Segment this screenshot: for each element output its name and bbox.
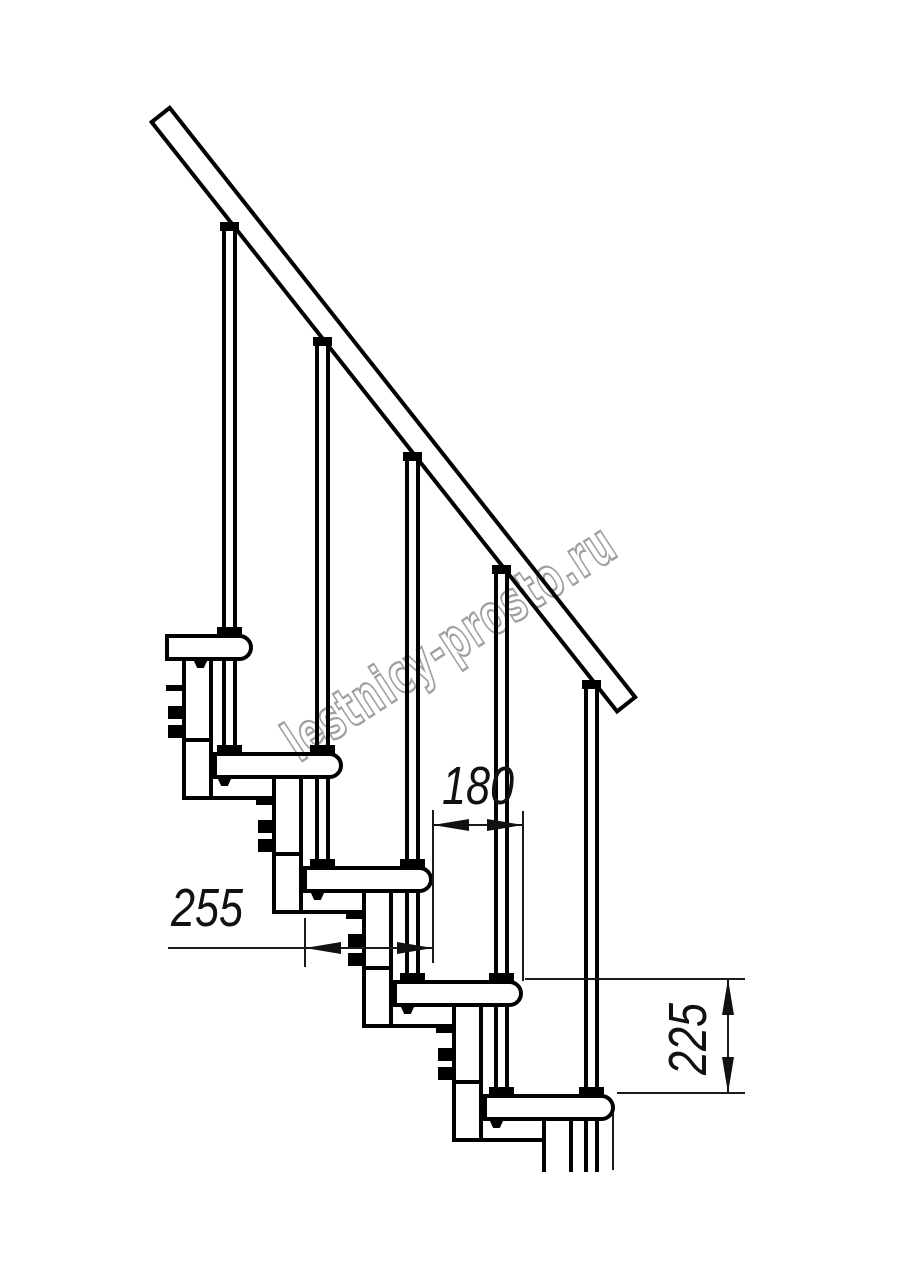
dimension-label-225: 225 [661, 1003, 715, 1075]
tube-joint-line [452, 1080, 483, 1084]
support-tube [362, 890, 393, 1028]
clamp-bolt [258, 820, 273, 833]
tread [483, 1094, 615, 1121]
tread [165, 634, 253, 661]
tube-joint-line [362, 966, 393, 970]
clamp-bar [436, 1027, 454, 1033]
baluster [315, 345, 330, 752]
baluster-lower-segment [405, 890, 420, 980]
arrow-180-right [487, 819, 523, 831]
technical-drawing-canvas: lestnicy-prosto.ru 180 255 225 [0, 0, 914, 1280]
clamp-bolt [168, 725, 183, 738]
support-tube [272, 776, 303, 914]
ext-line-180-right [522, 811, 524, 981]
arrow-225-down [722, 1057, 734, 1093]
support-tube [542, 1118, 573, 1172]
clamp-bar [166, 685, 184, 691]
ext-line-225-top [525, 978, 745, 980]
clamp-bolt [348, 953, 363, 966]
tread [303, 866, 433, 893]
module-base-plate [452, 1138, 546, 1142]
ext-line-180-left [432, 810, 434, 963]
baluster-bottom-flange [310, 745, 335, 754]
edge-line-bottom [612, 1113, 614, 1170]
arrow-255-left [305, 942, 341, 954]
baluster-bottom-flange [489, 973, 514, 982]
baluster [405, 460, 420, 866]
clamp-bolt [348, 934, 363, 947]
baluster-lower-segment [584, 1118, 599, 1172]
baluster-bottom-flange [217, 627, 242, 636]
dimension-label-180: 180 [442, 759, 514, 813]
support-tube [182, 658, 213, 800]
clamp-bolt [258, 839, 273, 852]
baluster-bottom-flange [579, 1087, 604, 1096]
arrow-180-left [433, 819, 469, 831]
clamp-bar [346, 913, 364, 919]
support-tube [452, 1004, 483, 1142]
baluster-lower-segment [222, 658, 237, 752]
tube-joint-line [182, 738, 213, 742]
baluster-bottom-flange [400, 859, 425, 868]
baluster [222, 230, 237, 634]
stair-structure [0, 0, 914, 1280]
clamp-bar [256, 799, 274, 805]
baluster [584, 688, 599, 1094]
tube-joint-line [272, 852, 303, 856]
dim-line-255 [168, 947, 433, 949]
dimension-label-255: 255 [171, 881, 243, 935]
baluster-lower-segment [315, 776, 330, 866]
arrow-225-up [722, 979, 734, 1015]
tread [393, 980, 523, 1007]
clamp-bolt [438, 1067, 453, 1080]
arrow-255-right [397, 942, 433, 954]
baluster-lower-segment [494, 1004, 509, 1094]
clamp-bolt [438, 1048, 453, 1061]
tread [213, 752, 343, 779]
clamp-bolt [168, 706, 183, 719]
